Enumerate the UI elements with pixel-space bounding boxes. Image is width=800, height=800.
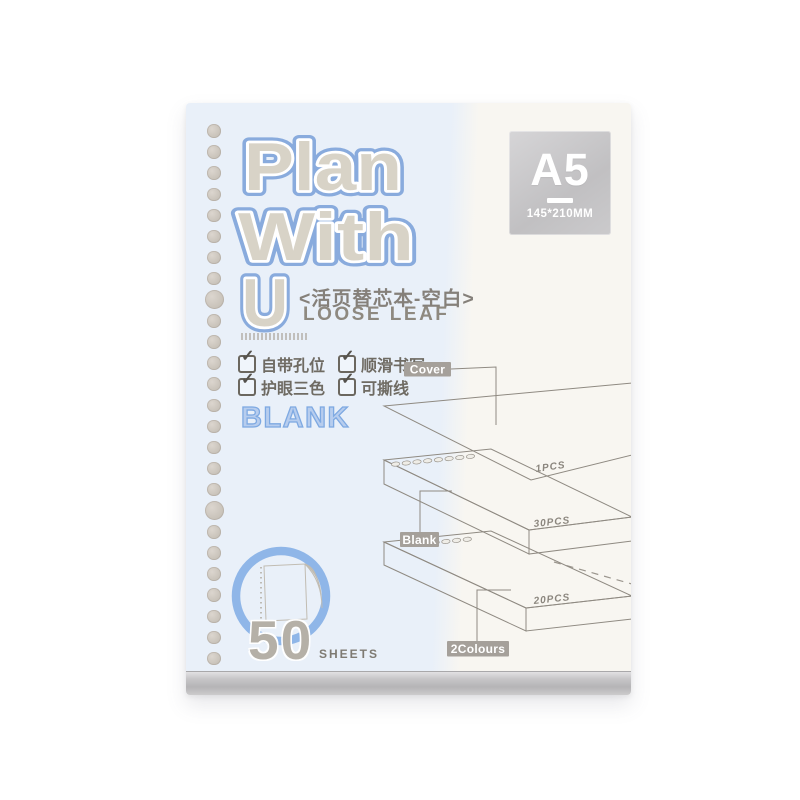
cover-sheet-illustration [384, 383, 631, 480]
colours-count: 20PCS [532, 592, 571, 607]
punch-holes-icon [391, 454, 475, 467]
colours-connector-line [477, 590, 511, 641]
blank-count: 30PCS [533, 515, 571, 530]
sheet-count-unit: SHEETS [319, 647, 379, 661]
blank-connector-line [420, 491, 452, 532]
svg-text:Blank: Blank [402, 533, 436, 547]
cover-bottom-edge [186, 671, 631, 695]
blank-label: Blank [400, 532, 439, 547]
svg-text:Cover: Cover [410, 363, 446, 377]
exploded-stack-diagram: 1PCS 30PCS 20PCS Cover Blank [186, 103, 631, 695]
colours-label: 2Colours [447, 641, 509, 657]
sheet-count-number: 50 [248, 613, 313, 668]
cover-label: Cover [404, 362, 451, 377]
svg-text:2Colours: 2Colours [451, 642, 505, 656]
notebook-cover-photo: Plan Plan Plan With With With U U U <活页替… [186, 103, 631, 695]
